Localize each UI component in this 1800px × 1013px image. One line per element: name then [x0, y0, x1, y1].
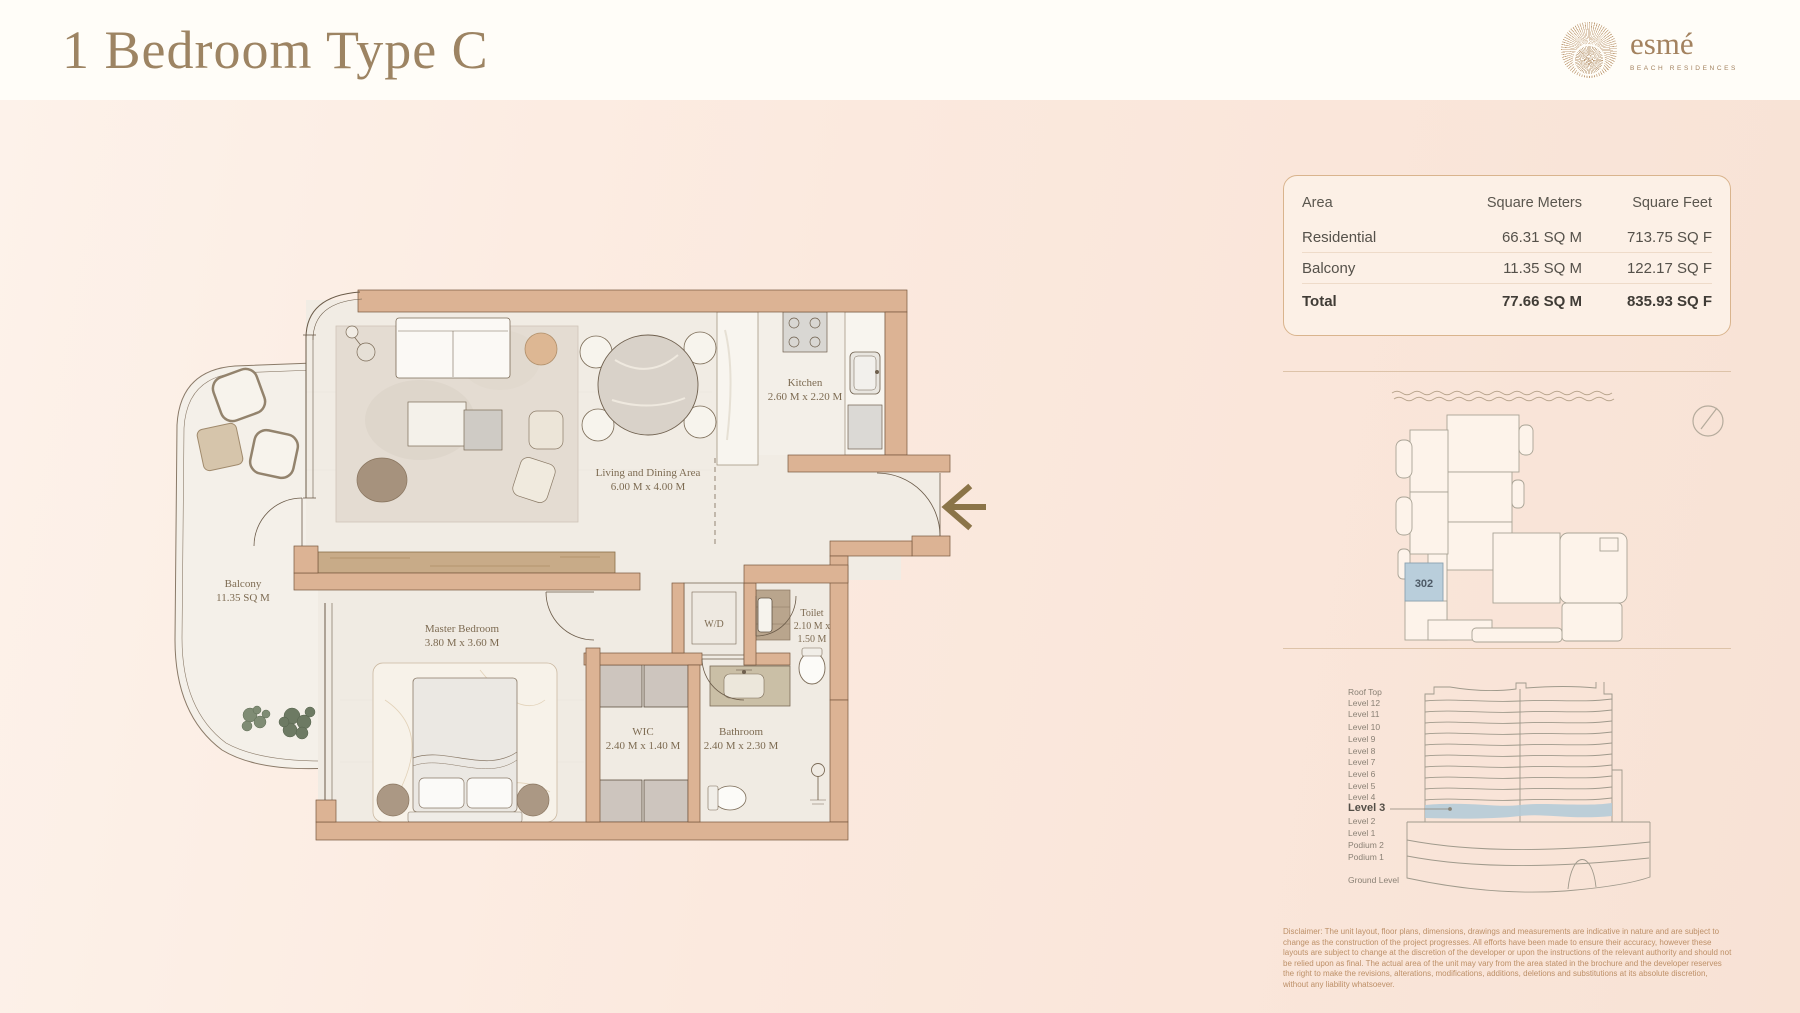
- table-row-balcony: Balcony 11.35 SQ M 122.17 SQ F: [1302, 252, 1712, 283]
- col-sqm: Square Meters: [1452, 195, 1582, 211]
- level-label: Level 2: [1348, 816, 1375, 826]
- ottoman: [357, 458, 407, 502]
- fridge: [848, 405, 882, 449]
- key-plan: 302: [1380, 385, 1740, 648]
- level-label: Level 10: [1348, 722, 1380, 732]
- table-row-total: Total 77.66 SQ M 835.93 SQ F: [1302, 283, 1712, 318]
- label-wd: W/D: [704, 619, 723, 630]
- entry-arrow-icon: [946, 488, 983, 526]
- level-label: Level 7: [1348, 757, 1375, 767]
- label-living: Living and Dining Area: [596, 467, 701, 479]
- level-label: Level 8: [1348, 746, 1375, 756]
- cooktop: [783, 312, 827, 352]
- toilet-wc: [799, 648, 825, 684]
- level-label: Level 4: [1348, 792, 1375, 802]
- brand-logo: esmé BEACH RESIDENCES: [1561, 22, 1738, 78]
- building-elevation: Roof Top Level 12 Level 11 Level 10 Leve…: [1340, 682, 1670, 910]
- level-label: Level 1: [1348, 828, 1375, 838]
- compass-icon: [1693, 406, 1723, 436]
- bathroom-toilet: [708, 786, 746, 810]
- label-kitchen-dims: 2.60 M x 2.20 M: [768, 391, 843, 403]
- level-label-highlighted: Level 3: [1348, 802, 1385, 814]
- unit-number: 302: [1415, 578, 1433, 590]
- brand-tagline: BEACH RESIDENCES: [1630, 65, 1738, 72]
- disclaimer-text: Disclaimer: The unit layout, floor plans…: [1283, 927, 1735, 990]
- coffee-table: [408, 402, 466, 446]
- water-waves-icon: [1392, 391, 1614, 401]
- label-wic-dims: 2.40 M x 1.40 M: [606, 740, 681, 752]
- level-label: Level 5: [1348, 781, 1375, 791]
- divider: [1283, 371, 1731, 372]
- divider: [1283, 648, 1731, 649]
- label-balcony: Balcony: [225, 578, 262, 590]
- label-toilet-dims1: 2.10 M x: [794, 621, 830, 632]
- kitchen-sink: [850, 352, 880, 394]
- level-label: Level 11: [1348, 709, 1380, 719]
- label-bathroom: Bathroom: [719, 726, 763, 738]
- vanity: [710, 666, 790, 706]
- label-toilet: Toilet: [800, 608, 823, 619]
- brand-text: esmé BEACH RESIDENCES: [1630, 28, 1738, 72]
- shell-logo-icon: [1561, 22, 1617, 78]
- label-toilet-dims2: 1.50 M: [798, 634, 827, 645]
- label-living-dims: 6.00 M x 4.00 M: [611, 481, 686, 493]
- level-label: Roof Top: [1348, 687, 1382, 697]
- nightstand-left: [377, 784, 409, 816]
- col-sqf: Square Feet: [1582, 195, 1712, 211]
- side-table: [525, 333, 557, 365]
- label-bathroom-dims: 2.40 M x 2.30 M: [704, 740, 779, 752]
- label-balcony-dims: 11.35 SQ M: [216, 592, 270, 604]
- nightstand-right: [517, 784, 549, 816]
- kitchen-counter: [717, 312, 758, 465]
- page-title: 1 Bedroom Type C: [62, 19, 489, 81]
- floor-plan: Living and Dining Area 6.00 M x 4.00 M K…: [140, 250, 1080, 865]
- header: 1 Bedroom Type C esmé BEACH RESIDENCES: [0, 0, 1800, 100]
- table-row-residential: Residential 66.31 SQ M 713.75 SQ F: [1302, 222, 1712, 252]
- level-label: Level 9: [1348, 734, 1375, 744]
- level-label: Level 12: [1348, 698, 1380, 708]
- media-console: [318, 552, 615, 573]
- label-master-dims: 3.80 M x 3.60 M: [425, 637, 500, 649]
- label-master: Master Bedroom: [425, 623, 500, 635]
- label-wic: WIC: [632, 726, 653, 738]
- level-3-highlight: [1425, 803, 1612, 819]
- level-label: Level 6: [1348, 769, 1375, 779]
- area-table: Area Square Meters Square Feet Residenti…: [1283, 175, 1731, 336]
- level-label: Podium 1: [1348, 852, 1384, 862]
- area-table-header: Area Square Meters Square Feet: [1302, 184, 1712, 222]
- dining-set: [580, 332, 716, 441]
- toilet-basin: [758, 598, 772, 632]
- building-footprint: [1396, 415, 1627, 642]
- coffee-table-2: [464, 410, 502, 450]
- pouf: [529, 411, 563, 449]
- col-area: Area: [1302, 195, 1452, 211]
- bed: [408, 678, 522, 822]
- brand-name: esmé: [1630, 28, 1738, 59]
- level-label: Podium 2: [1348, 840, 1384, 850]
- sofa: [396, 318, 510, 378]
- label-kitchen: Kitchen: [788, 377, 823, 389]
- level-label: Ground Level: [1348, 875, 1399, 885]
